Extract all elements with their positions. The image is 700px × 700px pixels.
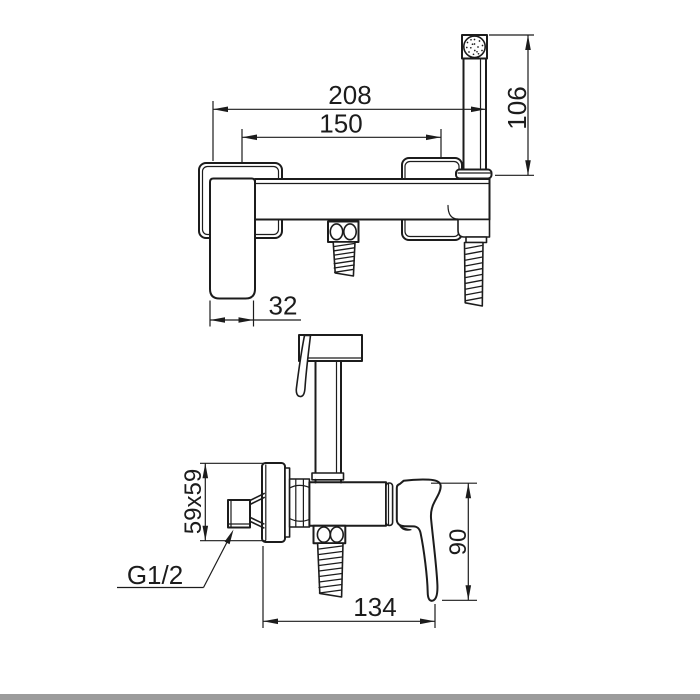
union-nut — [290, 479, 310, 527]
dim-label-g12: G1/2 — [127, 560, 183, 590]
mixer-bar — [255, 179, 490, 220]
inlet-port-g12 — [228, 500, 250, 528]
hand-shower-head — [462, 35, 487, 59]
dim-label-134: 134 — [353, 592, 396, 622]
shower-hose-bottom — [318, 543, 343, 597]
footer-bar — [0, 694, 700, 700]
dim-label-32: 32 — [269, 291, 298, 321]
wand-holder-bracket — [456, 170, 492, 179]
dim-label-106: 106 — [502, 86, 532, 129]
center-outlet-nut — [328, 222, 359, 243]
pipe-flange — [312, 473, 344, 480]
wall-plate-side — [262, 463, 290, 542]
dim-label-150: 150 — [319, 109, 362, 139]
dim-label-59x59: 59x59 — [180, 469, 207, 534]
center-outlet-thread — [333, 242, 355, 276]
technical-drawing: 208 150 106 32 — [0, 0, 700, 700]
body-cap — [386, 483, 393, 525]
valve-body — [309, 482, 392, 525]
bottom-outlet-nut — [314, 526, 346, 544]
dim-label-90: 90 — [445, 529, 472, 556]
shower-hose-front — [465, 243, 484, 307]
mixer-handle-front — [210, 179, 255, 299]
dim-label-208: 208 — [328, 80, 371, 110]
